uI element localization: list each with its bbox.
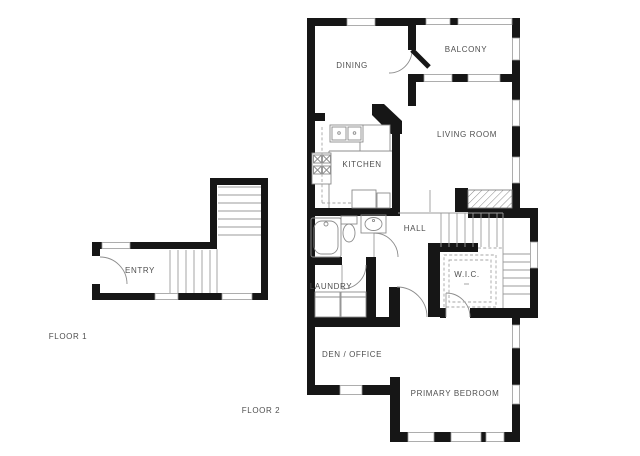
floor2-caption: FLOOR 2 xyxy=(242,406,280,415)
floor2-plan: DINING BALCONY LIVING ROOM KITCHEN HALL … xyxy=(307,18,538,442)
hall-label: HALL xyxy=(404,224,426,233)
den-office-label: DEN / OFFICE xyxy=(322,350,382,359)
toilet-bowl xyxy=(343,224,355,242)
refrigerator xyxy=(360,125,390,151)
kitchen-label: KITCHEN xyxy=(342,160,381,169)
kitchen-sink xyxy=(330,125,363,142)
toilet-tank xyxy=(341,216,357,224)
wic-door-arc xyxy=(446,293,470,317)
dining-label: DINING xyxy=(336,61,368,70)
dryer xyxy=(341,292,366,317)
floor2-doors xyxy=(342,50,470,317)
floor1-plan: ENTRY xyxy=(92,178,268,300)
wic-label: W.I.C. xyxy=(454,270,479,279)
balcony-label: BALCONY xyxy=(445,45,487,54)
entry-label: ENTRY xyxy=(125,266,155,275)
washer xyxy=(315,292,340,317)
bathroom-fixtures xyxy=(311,215,386,257)
floor1-caption: FLOOR 1 xyxy=(49,332,87,341)
bathroom-door-arc xyxy=(374,233,398,257)
laundry-label: LAUNDRY xyxy=(310,282,352,291)
stair-opening-hatch xyxy=(468,190,512,208)
living-room-label: LIVING ROOM xyxy=(437,130,497,139)
floor1-walls xyxy=(92,178,268,300)
balcony-door-leaf xyxy=(412,50,429,67)
entry-door-arc xyxy=(100,257,127,284)
balcony-door-arc xyxy=(389,50,412,73)
dishwasher xyxy=(352,190,376,208)
bedroom-door-arc xyxy=(397,287,427,317)
laundry-fixtures xyxy=(315,292,366,317)
floor-plan-drawing: ENTRY xyxy=(0,0,640,456)
primary-bedroom-label: PRIMARY BEDROOM xyxy=(411,389,500,398)
floor-plan-page: ENTRY xyxy=(0,0,640,456)
